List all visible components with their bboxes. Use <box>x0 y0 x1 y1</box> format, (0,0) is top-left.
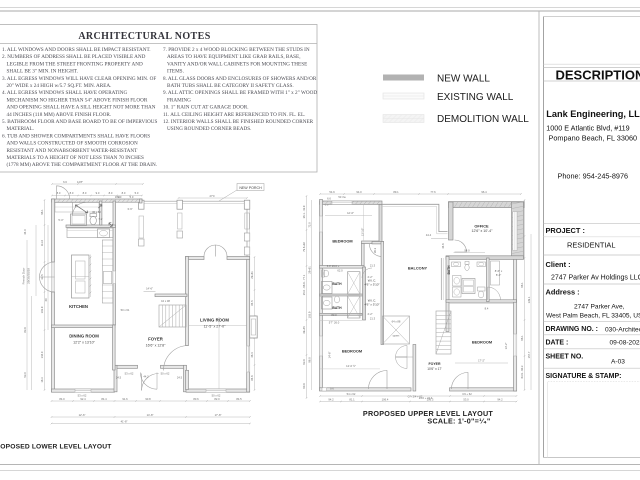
svg-text:BEDROOM: BEDROOM <box>332 239 352 244</box>
svg-text:12'-6 ½": 12'-6 ½" <box>346 364 356 368</box>
svg-text:8.0: 8.0 <box>109 191 113 195</box>
svg-text:BATH: BATH <box>332 306 342 310</box>
svg-text:12'-6": 12'-6" <box>79 413 86 417</box>
svg-text:PROJECT :: PROJECT : <box>546 226 585 235</box>
svg-text:84.5: 84.5 <box>250 300 254 306</box>
svg-text:50 x 62: 50 x 62 <box>212 394 221 398</box>
svg-text:103.9: 103.9 <box>307 311 311 318</box>
svg-text:91.6: 91.6 <box>122 397 128 401</box>
svg-text:AND OPENING SHALL HAVE A SILL: AND OPENING SHALL HAVE A SILL HEIGHT NOT… <box>7 105 156 111</box>
svg-text:29+61: 29+61 <box>307 266 311 274</box>
svg-text:BATH: BATH <box>447 265 451 275</box>
svg-text:53 x 62: 53 x 62 <box>125 372 134 376</box>
svg-text:72.0: 72.0 <box>307 222 311 228</box>
svg-text:12'-6": 12'-6" <box>347 211 354 215</box>
svg-text:36.1 - 43.9: 36.1 - 43.9 <box>302 205 306 218</box>
svg-text:5'7" 26.0: 5'7" 26.0 <box>329 321 340 325</box>
svg-text:DESCRIPTION: DESCRIPTION <box>556 67 640 82</box>
svg-text:BALCONY: BALCONY <box>408 266 428 271</box>
svg-text:USING ROUNDED CORNER BEADS.: USING ROUNDED CORNER BEADS. <box>167 126 251 132</box>
svg-text:94.2: 94.2 <box>497 397 503 401</box>
svg-text:84.0: 84.0 <box>59 397 65 401</box>
svg-text:94.0: 94.0 <box>356 190 362 194</box>
svg-text:94.0: 94.0 <box>464 248 470 252</box>
svg-text:Address :: Address : <box>546 288 580 297</box>
svg-text:63.9 - 90.3: 63.9 - 90.3 <box>520 365 524 378</box>
svg-text:4'-2": 4'-2" <box>367 312 372 316</box>
svg-text:66.1: 66.1 <box>520 282 524 288</box>
svg-text:79.6+92: 79.6+92 <box>302 242 306 252</box>
svg-text:BATH TUBS SHALL BE CATEGORY II: BATH TUBS SHALL BE CATEGORY II SAFETY GL… <box>167 83 294 89</box>
svg-text:6.6: 6.6 <box>327 196 331 200</box>
svg-text:BEDROOM: BEDROOM <box>472 340 492 345</box>
svg-text:93.8: 93.8 <box>145 397 151 401</box>
svg-text:36.3: 36.3 <box>373 247 377 253</box>
svg-text:63.9: 63.9 <box>302 359 306 365</box>
svg-text:53.0: 53.0 <box>23 372 27 378</box>
svg-text:ITEMS.: ITEMS. <box>167 69 184 75</box>
svg-text:16'6" x 12'8": 16'6" x 12'8" <box>146 344 166 348</box>
svg-text:96.1: 96.1 <box>40 209 44 215</box>
svg-text:44 INCHES (118 MM) ABOVE FINIS: 44 INCHES (118 MM) ABOVE FINISH FLOOR. <box>7 111 112 118</box>
svg-text:MECHANISM NO HIGHER THAN 54" A: MECHANISM NO HIGHER THAN 54" ABOVE FINIS… <box>7 97 148 103</box>
svg-text:LIVING ROOM: LIVING ROOM <box>200 318 229 323</box>
svg-text:8'-6" x: 8'-6" x <box>495 269 503 273</box>
svg-text:84.6: 84.6 <box>250 375 254 381</box>
svg-text:OFFICE: OFFICE <box>474 223 489 228</box>
svg-text:35.0 - 66.9 - 77.1: 35.0 - 66.9 - 77.1 <box>302 274 306 295</box>
svg-text:24.5: 24.5 <box>177 376 183 380</box>
svg-text:8.4: 8.4 <box>485 307 489 311</box>
svg-text:144.0: 144.0 <box>40 351 44 358</box>
svg-text:157.7: 157.7 <box>527 351 531 358</box>
svg-text:Phone: 954-245-8976: Phone: 954-245-8976 <box>558 171 629 180</box>
svg-text:46.4: 46.4 <box>250 352 254 358</box>
svg-text:030-Architectural: 030-Architectural <box>605 326 640 333</box>
svg-text:17'-8": 17'-8" <box>215 413 222 417</box>
svg-text:13'-2": 13'-2" <box>504 343 508 350</box>
svg-text:Lank Engineering, LLC: Lank Engineering, LLC <box>546 109 640 119</box>
svg-text:DRAWING NO. :: DRAWING NO. : <box>546 326 599 333</box>
svg-text:10'6" x 17': 10'6" x 17' <box>427 367 442 371</box>
svg-text:96.4: 96.4 <box>481 190 487 194</box>
svg-text:14'-6": 14'-6" <box>146 287 153 291</box>
svg-text:3. ALL EGRESS WINDOWS WILL HA: 3. ALL EGRESS WINDOWS WILL HAVE CLEAR OP… <box>2 76 156 82</box>
svg-text:39+45: 39+45 <box>302 326 306 334</box>
svg-text:4'6" x 5'10": 4'6" x 5'10" <box>364 302 379 306</box>
svg-text:12'8": 12'8" <box>77 180 83 184</box>
svg-text:41'-8": 41'-8" <box>121 419 128 423</box>
svg-text:27'0: 27'0 <box>210 194 216 198</box>
svg-text:20" WIDE x 24 HIGH w/5.7 SQ.FT: 20" WIDE x 24 HIGH w/5.7 SQ.FT. MIN. ARE… <box>7 83 112 89</box>
svg-text:89.1: 89.1 <box>393 190 399 194</box>
svg-text:10. 1" RAIN CUT AT GARAGE DOOR: 10. 1" RAIN CUT AT GARAGE DOOR. <box>163 105 249 111</box>
svg-text:96.0: 96.0 <box>307 357 311 363</box>
svg-text:53 x 62: 53 x 62 <box>78 394 87 398</box>
svg-text:West Palm Beach, FL 33405, USA: West Palm Beach, FL 33405, USA <box>546 312 640 319</box>
svg-text:54.9: 54.9 <box>329 190 335 194</box>
svg-text:11'-5" x 27'-0": 11'-5" x 27'-0" <box>204 325 227 329</box>
svg-text:6.6: 6.6 <box>63 180 67 184</box>
svg-text:KITCHEN: KITCHEN <box>69 304 88 309</box>
svg-text:1. ALL WINDOWS AND DOORS SHAL: 1. ALL WINDOWS AND DOORS SHALL BE IMPACT… <box>2 47 151 53</box>
svg-text:NEW WALL: NEW WALL <box>437 74 490 85</box>
svg-text:VANITY AND/OR WALL CABINETS FO: VANITY AND/OR WALL CABINETS FOR MOUNTING… <box>167 61 307 67</box>
svg-text:62.0: 62.0 <box>337 269 343 273</box>
svg-text:5.0: 5.0 <box>130 195 134 199</box>
svg-text:9.6: 9.6 <box>330 386 334 390</box>
svg-text:FOYER: FOYER <box>148 337 164 342</box>
svg-text:29/36/30/29: 29/36/30/29 <box>27 268 31 284</box>
svg-text:60.9: 60.9 <box>302 383 306 389</box>
svg-text:MATERIALS TO A HEIGHT OF NOT L: MATERIALS TO A HEIGHT OF NOT LESS THAN 7… <box>7 155 145 161</box>
svg-text:21.3: 21.3 <box>370 263 376 267</box>
svg-text:A-03: A-03 <box>611 359 625 366</box>
svg-text:9. ALL ATTIC OPENINGS SHALL BE: 9. ALL ATTIC OPENINGS SHALL BE FRAMED WI… <box>163 90 317 96</box>
svg-text:77.6: 77.6 <box>430 190 436 194</box>
svg-text:3'-6": 3'-6" <box>127 207 132 211</box>
svg-text:81.1: 81.1 <box>349 397 355 401</box>
svg-text:8.0: 8.0 <box>83 191 87 195</box>
svg-text:8.0: 8.0 <box>57 191 61 195</box>
svg-text:44.0: 44.0 <box>23 229 27 235</box>
svg-text:83.6: 83.6 <box>193 397 199 401</box>
svg-text:111.0: 111.0 <box>40 239 44 246</box>
svg-text:18.3: 18.3 <box>40 377 44 383</box>
svg-text:DEMOLITION WALL: DEMOLITION WALL <box>437 114 529 125</box>
svg-text:8.0: 8.0 <box>122 191 126 195</box>
svg-text:RESIDENTIAL: RESIDENTIAL <box>567 241 615 250</box>
svg-text:MATERIAL.: MATERIAL. <box>7 126 35 132</box>
svg-text:44.4: 44.4 <box>426 233 432 237</box>
svg-text:EXISTING WALL: EXISTING WALL <box>437 92 514 103</box>
svg-text:FRAMING: FRAMING <box>167 97 191 103</box>
svg-text:84.4: 84.4 <box>101 397 107 401</box>
svg-text:5. BATHROOM FLOOR AND BASE BO: 5. BATHROOM FLOOR AND BASE BOARD TO BE O… <box>2 119 157 125</box>
svg-text:AREAS TO HAVE EQUIPMENT LIKE G: AREAS TO HAVE EQUIPMENT LIKE GRAB RAILS,… <box>167 54 301 60</box>
svg-text:83.9: 83.9 <box>23 327 27 333</box>
svg-text:French Door: French Door <box>22 268 26 285</box>
svg-text:50 x 62: 50 x 62 <box>161 372 170 376</box>
svg-text:09-08-2023: 09-08-2023 <box>610 340 640 347</box>
svg-text:17'-2": 17'-2" <box>478 358 485 362</box>
svg-text:Client :: Client : <box>546 260 571 269</box>
svg-text:66.1: 66.1 <box>520 335 524 341</box>
svg-text:BATH: BATH <box>332 282 342 286</box>
svg-text:54 x 62: 54 x 62 <box>347 392 356 396</box>
svg-text:8'-0": 8'-0" <box>496 273 501 277</box>
svg-text:2747 Parker Ave,: 2747 Parker Ave, <box>574 304 625 311</box>
svg-text:2747 Parker Av Holdings LLC: 2747 Parker Av Holdings LLC <box>551 275 640 282</box>
svg-text:6.0' 29.0 +: 6.0' 29.0 + <box>327 264 340 268</box>
svg-text:LEGIBLE FROM THE STREET FRONTI: LEGIBLE FROM THE STREET FRONTING PROPERT… <box>7 61 143 67</box>
svg-text:5'-0": 5'-0" <box>58 218 63 222</box>
svg-text:DINING ROOM: DINING ROOM <box>69 334 99 339</box>
svg-text:12'2" x 13'10": 12'2" x 13'10" <box>73 341 95 345</box>
svg-text:7. PROVIDE 2 x 4 WOOD BLOCKING: 7. PROVIDE 2 x 4 WOOD BLOCKING BETWEEN T… <box>163 47 310 53</box>
svg-text:53 r/w: 53 r/w <box>338 195 345 199</box>
svg-text:21.3: 21.3 <box>370 316 376 320</box>
svg-text:64 x 88: 64 x 88 <box>392 320 401 324</box>
svg-text:1000 E Atlantic Blvd, #119: 1000 E Atlantic Blvd, #119 <box>546 124 629 133</box>
svg-text:SIGNATURE & STAMP:: SIGNATURE & STAMP: <box>546 373 622 380</box>
svg-text:FOYER: FOYER <box>428 362 441 366</box>
svg-text:30 x 62: 30 x 62 <box>92 210 101 214</box>
svg-text:open: open <box>393 334 400 338</box>
svg-text:9.0: 9.0 <box>96 191 100 195</box>
svg-text:14'-6": 14'-6" <box>328 352 332 359</box>
svg-text:8. ALL GLASS DOORS AND ENCLOSU: 8. ALL GLASS DOORS AND ENCLOSURES OF SHO… <box>163 76 317 82</box>
svg-text:RESISTANT AND NONABSORBENT WAT: RESISTANT AND NONABSORBENT WATER-RESISTA… <box>7 148 139 154</box>
svg-text:BEDROOM: BEDROOM <box>342 349 362 354</box>
svg-text:13'-10": 13'-10" <box>361 228 365 236</box>
svg-text:40: 40 <box>44 298 48 301</box>
svg-text:24.0 + 24.3: 24.0 + 24.3 <box>419 396 433 400</box>
svg-text:53.0: 53.0 <box>463 397 469 401</box>
svg-text:24.5: 24.5 <box>116 376 122 380</box>
svg-text:10 x 38: 10 x 38 <box>161 299 170 303</box>
svg-text:94.2: 94.2 <box>328 397 334 401</box>
svg-text:50 x 61: 50 x 61 <box>121 308 130 312</box>
svg-text:106.4: 106.4 <box>382 397 389 401</box>
svg-text:AND WALLS CONSTRUCTED OF SMOOT: AND WALLS CONSTRUCTED OF SMOOTH CORROSIO… <box>7 141 138 147</box>
svg-text:6. TUB AND SHOWER COMPARTMENT: 6. TUB AND SHOWER COMPARTMENTS SHALL HAV… <box>2 133 150 139</box>
svg-text:44.6: 44.6 <box>441 243 445 249</box>
svg-text:84.5: 84.5 <box>236 397 242 401</box>
svg-text:SCALE: 1'-0"=¹⁄₄": SCALE: 1'-0"=¹⁄₄" <box>427 417 490 426</box>
svg-text:44.2: 44.2 <box>143 375 149 379</box>
svg-text:NEW PORCH: NEW PORCH <box>239 186 262 190</box>
svg-text:12. INTERIOR WALLS SHALL BE FI: 12. INTERIOR WALLS SHALL BE FINISHED ROU… <box>163 119 314 125</box>
svg-text:PROPOSED LOWER LEVEL LAYOUT: PROPOSED LOWER LEVEL LAYOUT <box>0 443 112 450</box>
svg-text:14'-8": 14'-8" <box>147 413 154 417</box>
svg-text:4'6" x 5'10": 4'6" x 5'10" <box>364 282 379 286</box>
svg-text:11. ALL CEILING HEIGHT ARE REF: 11. ALL CEILING HEIGHT ARE REFERENCED TO… <box>163 112 305 118</box>
svg-text:7.2': 7.2' <box>98 217 103 221</box>
svg-text:29+61: 29+61 <box>250 271 254 279</box>
svg-text:(1778 MM) ABOVE THE COMPARTMEN: (1778 MM) ABOVE THE COMPARTMENT FLOOR AT… <box>7 161 158 168</box>
svg-text:139.1: 139.1 <box>527 296 531 303</box>
svg-text:ARCHITECTURAL NOTES: ARCHITECTURAL NOTES <box>78 31 210 42</box>
svg-text:C9 + 62: C9 + 62 <box>462 392 472 396</box>
svg-text:103.9: 103.9 <box>40 306 44 313</box>
svg-text:SHEET NO.: SHEET NO. <box>546 353 584 360</box>
svg-text:8.0: 8.0 <box>70 191 74 195</box>
svg-text:4. ALL EGRESS WINDOWS SHALL H: 4. ALL EGRESS WINDOWS SHALL HAVE OPERATI… <box>2 90 127 96</box>
svg-text:SHALL BE 3" MIN. IN HEIGHT.: SHALL BE 3" MIN. IN HEIGHT. <box>7 69 78 75</box>
svg-text:16.0: 16.0 <box>115 195 121 199</box>
svg-text:DATE :: DATE : <box>546 339 569 346</box>
svg-text:2. NUMBERS OF ADDRESS SHALL B: 2. NUMBERS OF ADDRESS SHALL BE PLACED VI… <box>2 54 146 60</box>
svg-text:5.0: 5.0 <box>135 191 139 195</box>
svg-text:12'6" x 10'-4": 12'6" x 10'-4" <box>472 229 494 233</box>
svg-text:80.0: 80.0 <box>331 313 337 317</box>
svg-text:Pompano Beach, FL 33060: Pompano Beach, FL 33060 <box>549 133 638 142</box>
